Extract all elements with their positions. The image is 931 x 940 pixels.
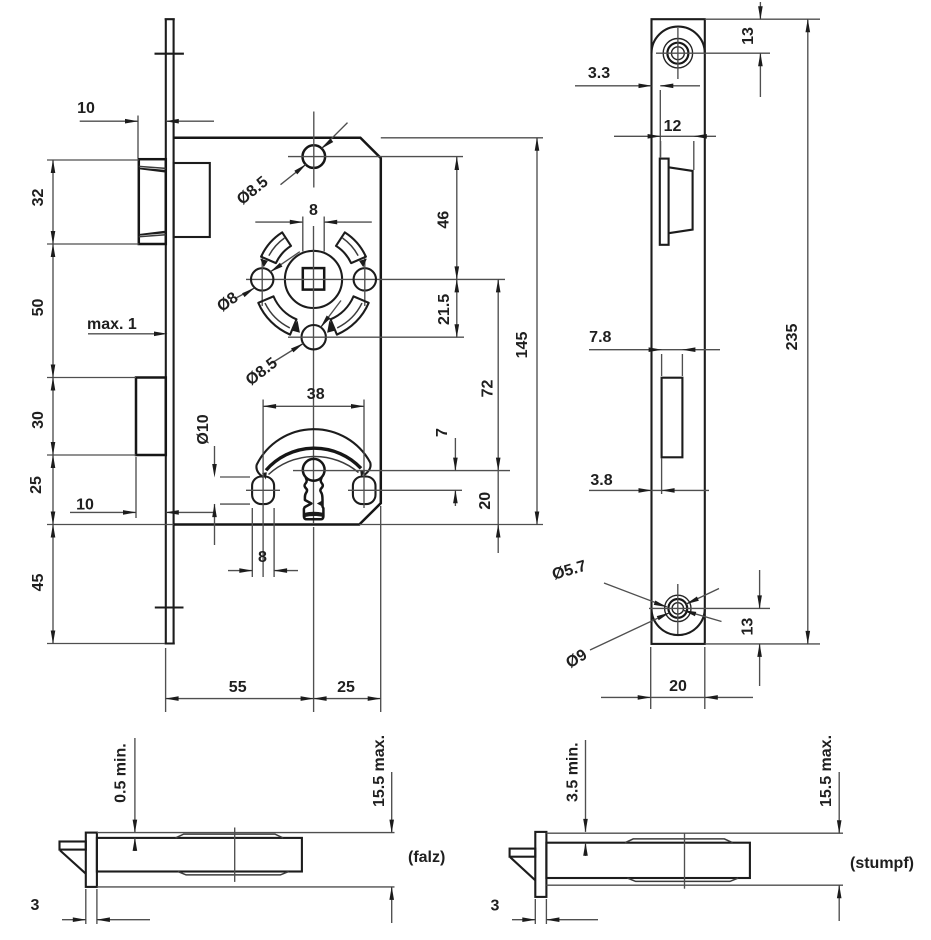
svg-text:8: 8	[309, 202, 318, 219]
svg-text:12: 12	[664, 118, 682, 135]
svg-text:(stumpf): (stumpf)	[850, 855, 914, 872]
svg-text:145: 145	[514, 332, 531, 359]
svg-text:Ø8.5: Ø8.5	[243, 355, 281, 390]
svg-text:Ø8.5: Ø8.5	[234, 173, 272, 208]
svg-text:Ø9: Ø9	[563, 646, 590, 672]
svg-text:10: 10	[77, 100, 95, 117]
svg-text:38: 38	[307, 386, 325, 403]
svg-text:25: 25	[28, 476, 45, 494]
svg-text:72: 72	[480, 380, 497, 398]
svg-text:13: 13	[739, 618, 756, 636]
svg-text:0.5 min.: 0.5 min.	[113, 743, 130, 803]
svg-text:Ø10: Ø10	[195, 414, 212, 444]
svg-text:32: 32	[30, 189, 47, 207]
svg-text:20: 20	[477, 492, 494, 510]
svg-text:3.8: 3.8	[590, 472, 612, 489]
svg-text:50: 50	[30, 299, 47, 317]
svg-text:15.5 max.: 15.5 max.	[818, 735, 835, 807]
svg-text:46: 46	[435, 211, 452, 229]
svg-text:7.8: 7.8	[589, 329, 611, 346]
svg-text:235: 235	[784, 324, 801, 351]
svg-text:10: 10	[76, 497, 94, 514]
svg-text:Ø8: Ø8	[214, 289, 241, 315]
svg-text:21.5: 21.5	[436, 294, 453, 325]
svg-text:15.5 max.: 15.5 max.	[371, 735, 388, 807]
svg-text:3: 3	[31, 897, 40, 914]
svg-text:3: 3	[491, 898, 500, 915]
svg-text:(falz): (falz)	[408, 849, 445, 866]
svg-text:55: 55	[229, 679, 247, 696]
svg-text:3.5 min.: 3.5 min.	[564, 742, 581, 802]
svg-text:20: 20	[669, 678, 687, 695]
svg-text:max. 1: max. 1	[87, 316, 137, 333]
svg-text:13: 13	[740, 27, 757, 45]
svg-text:Ø5.7: Ø5.7	[550, 558, 588, 584]
svg-text:8: 8	[258, 549, 267, 566]
svg-text:30: 30	[30, 411, 47, 429]
svg-text:3.3: 3.3	[588, 65, 610, 82]
svg-text:45: 45	[30, 574, 47, 592]
svg-text:25: 25	[337, 679, 355, 696]
svg-text:7: 7	[434, 428, 451, 437]
